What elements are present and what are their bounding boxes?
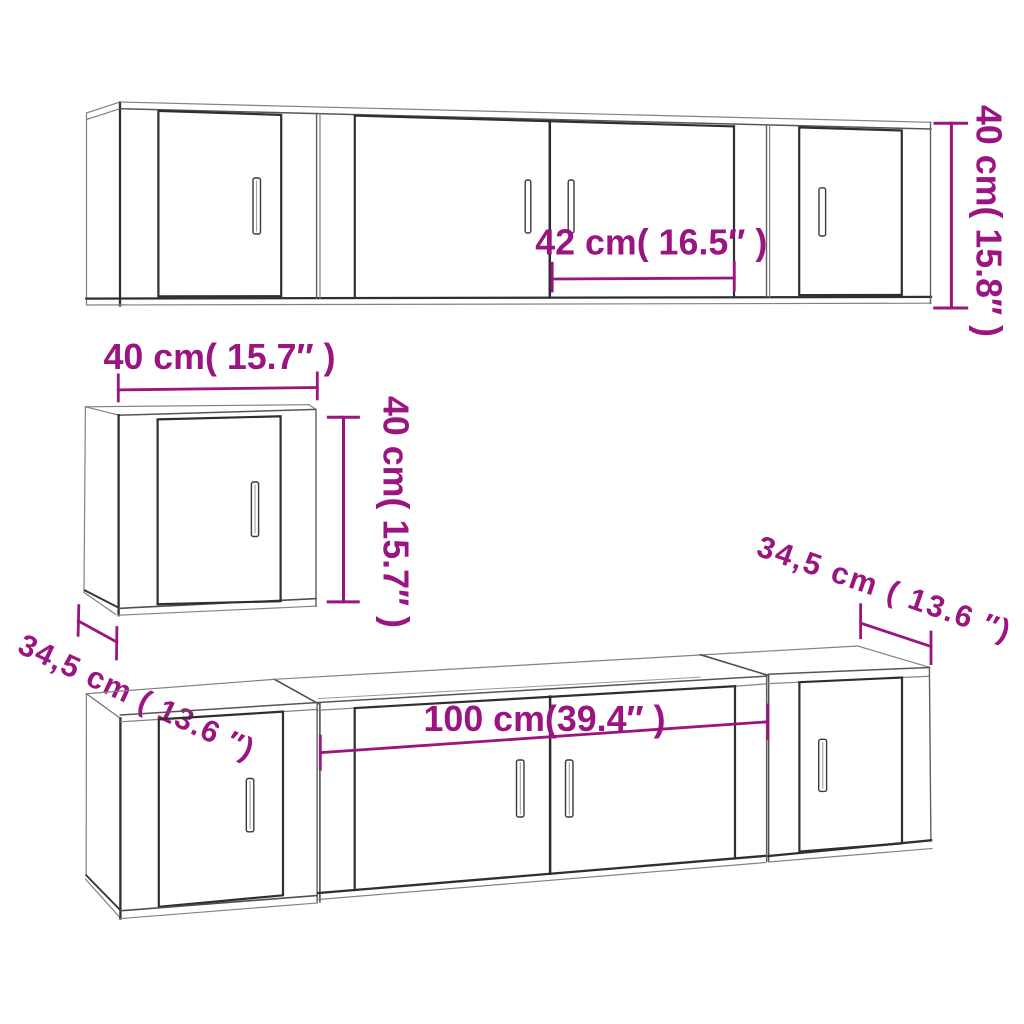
svg-text:40 cm( 15.7″ ): 40 cm( 15.7″ ) (104, 337, 336, 377)
svg-text:40 cm( 15.8″ ): 40 cm( 15.8″ ) (969, 105, 1009, 337)
svg-text:42 cm( 16.5″ ): 42 cm( 16.5″ ) (535, 222, 767, 262)
svg-text:40 cm( 15.7″ ): 40 cm( 15.7″ ) (376, 396, 416, 628)
svg-text:100 cm(39.4″ ): 100 cm(39.4″ ) (424, 699, 666, 739)
